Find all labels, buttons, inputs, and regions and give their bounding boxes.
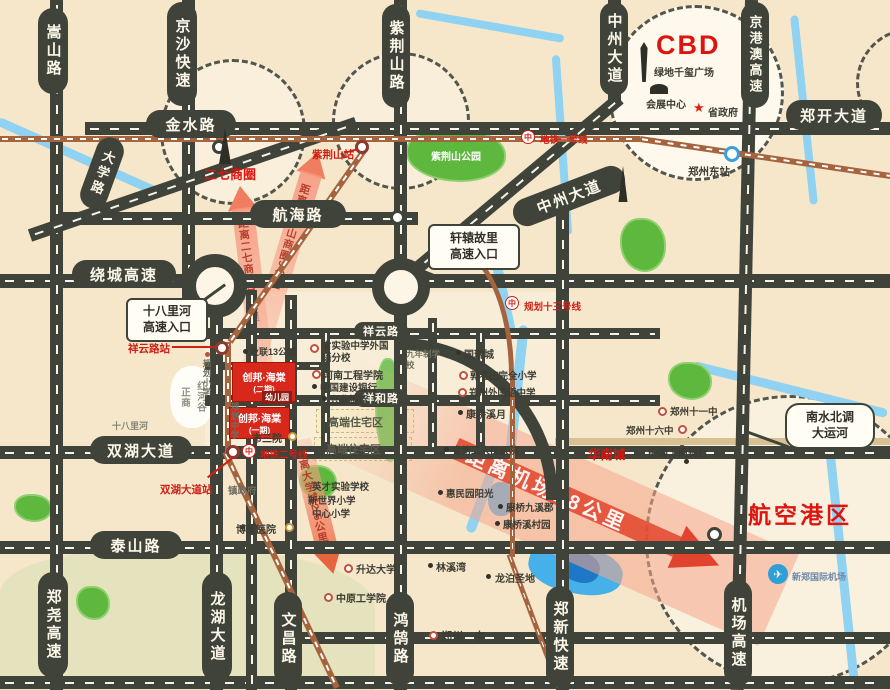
poi-kangqiao-jiuxijun: 康桥九溪郡	[506, 500, 554, 514]
park	[14, 494, 52, 522]
poi-waiguoyu: 郑州外国语中学	[469, 385, 536, 399]
road-label-zhengkai: 郑开大道	[786, 100, 882, 130]
road-label-zhengxin: 郑新快速	[546, 586, 574, 688]
xiangyunlu-station-label: 祥云路站	[128, 341, 170, 356]
road-label-zijingshan: 紫荆山路	[382, 4, 410, 108]
xiangyunlu-station-circle	[215, 341, 229, 355]
poi-yizhong: 郑州一中	[441, 628, 485, 644]
poi-kangqiao-xiyue: 康桥溪月	[466, 406, 506, 421]
poi-huimin: 惠民园阳光	[446, 486, 494, 500]
poi-guihua-xiaoxue: 规划小学	[201, 359, 213, 397]
poi-boai: 博爱医院	[236, 521, 276, 536]
metro-logo: 中	[505, 296, 519, 310]
station-pointer	[172, 346, 216, 348]
poi-gaoduan1: 高端住宅区	[328, 414, 383, 430]
metro-line1-label: 地铁一号线	[540, 132, 588, 146]
river	[415, 9, 564, 43]
poi-sheng2yy: 省第二人民医院	[452, 443, 519, 457]
poi-guolaozhuang: 郭老庄完全小学	[470, 368, 537, 382]
road-label-jinggangao: 京港澳高速	[741, 2, 769, 108]
poi-xinshijie: 新世界小学	[308, 493, 356, 507]
poi-yingcai: 英才实验学校	[312, 479, 369, 493]
poi-zhongxin: 中心小学	[312, 506, 350, 520]
poi-longbo: 龙泊圣地	[495, 570, 535, 585]
convention-center-icon	[650, 84, 668, 94]
road-label-xiangyun: 祥云路	[354, 322, 408, 340]
road-label-honghu: 鸿鹄路	[386, 592, 414, 686]
east-station-icon	[724, 146, 740, 162]
zijingshan-park-label: 紫荆山公园	[431, 148, 481, 163]
road-label-zhongzhou-n: 中州大道	[600, 2, 628, 96]
poi-shengda: 升达大学	[356, 561, 396, 576]
poi-shiliuzhong: 郑州十六中	[626, 423, 674, 437]
metro-logo: 中	[521, 130, 535, 144]
bottom-road	[0, 676, 890, 689]
erqi-district-label: 二七商圈	[204, 164, 256, 183]
poi-shiyan: 省实验中学外国语分校	[322, 341, 390, 365]
poi-zhongyuan: 中原工学院	[336, 590, 386, 605]
park	[620, 218, 666, 272]
huanancheng-label: 华南城	[588, 444, 626, 463]
location-map: 紫荆山公园	[0, 0, 890, 690]
canal-callout: 南水北调 大运河	[785, 403, 875, 449]
poi-guorui: 国瑞城	[464, 346, 494, 361]
poi-gongshang: 中国工商银行	[648, 444, 708, 459]
poi-sanyuan: 市三院	[252, 430, 282, 445]
poi-zhenzhengfu: 镇政府	[228, 483, 257, 497]
zijingshan-station-label: 紫荆山站	[312, 147, 354, 162]
road-label-jingsha: 京沙快速	[167, 2, 197, 106]
metro-line13-label: 规划十三号线	[524, 299, 581, 313]
poi-linxiwan: 林溪湾	[436, 559, 466, 574]
poi-shiyizhong: 郑州十一中	[670, 404, 718, 418]
road-label-songshan: 嵩山路	[38, 8, 68, 94]
metro-logo: 中	[242, 444, 256, 458]
road-label-wenchang: 文昌路	[274, 592, 302, 686]
provincial-gov-label: 省政府	[708, 104, 738, 119]
metro-line2-label: 地铁二号线	[260, 447, 308, 461]
poi-shibalihe-river: 十八里河	[112, 419, 148, 432]
park	[668, 362, 712, 400]
cbd-label: CBD	[656, 30, 721, 61]
airplane-icon: ✈	[768, 564, 788, 584]
greenland-plaza-label: 绿地千玺广场	[654, 64, 714, 79]
airport-label: 新郑国际机场	[792, 570, 846, 583]
road-label-shuanghu: 双湖大道	[90, 436, 192, 464]
road-label-taishan: 泰山路	[90, 531, 182, 559]
road-label-jinshui: 金水路	[146, 110, 236, 138]
zijingshan-station-circle	[355, 140, 369, 154]
gov-star-icon: ★	[693, 100, 705, 116]
poi-jiunianzhi: 九年制学校	[406, 349, 444, 370]
poi-guihua-zhongxue: 规划中学	[229, 402, 241, 440]
xuanyuan-interchange	[372, 258, 430, 316]
road-label-jichang: 机场高速	[724, 580, 752, 686]
road-label-longhu: 龙湖大道	[202, 572, 232, 682]
airport-district-label: 航空港区	[748, 496, 852, 530]
poi-yelian: 业联13公馆	[250, 345, 296, 358]
junction-circle	[390, 210, 405, 225]
kindergarten-tag: 幼儿园	[262, 391, 292, 404]
park	[76, 586, 110, 620]
shuanghu-station-label: 双湖大道站	[160, 482, 213, 497]
convention-center-label: 会展中心	[646, 96, 686, 111]
poi-gaoduan2: 高端住宅区	[326, 441, 381, 457]
poi-xingye: 兴业银行	[330, 392, 368, 406]
road-label-zhengyao: 郑尧高速	[38, 572, 68, 678]
junction-circle	[707, 527, 722, 542]
shibalihe-entrance-callout: 十八里河 高速入口	[126, 298, 208, 342]
poi-kangqiao-xicunyuan: 康桥溪村园	[503, 517, 551, 531]
xuanyuan-entrance-callout: 轩辕故里 高速入口	[428, 224, 520, 270]
east-station-label: 郑州东站	[688, 164, 730, 179]
road-label-raocheng: 绕城高速	[72, 260, 176, 288]
road-label-hanghai: 航海路	[250, 200, 346, 228]
